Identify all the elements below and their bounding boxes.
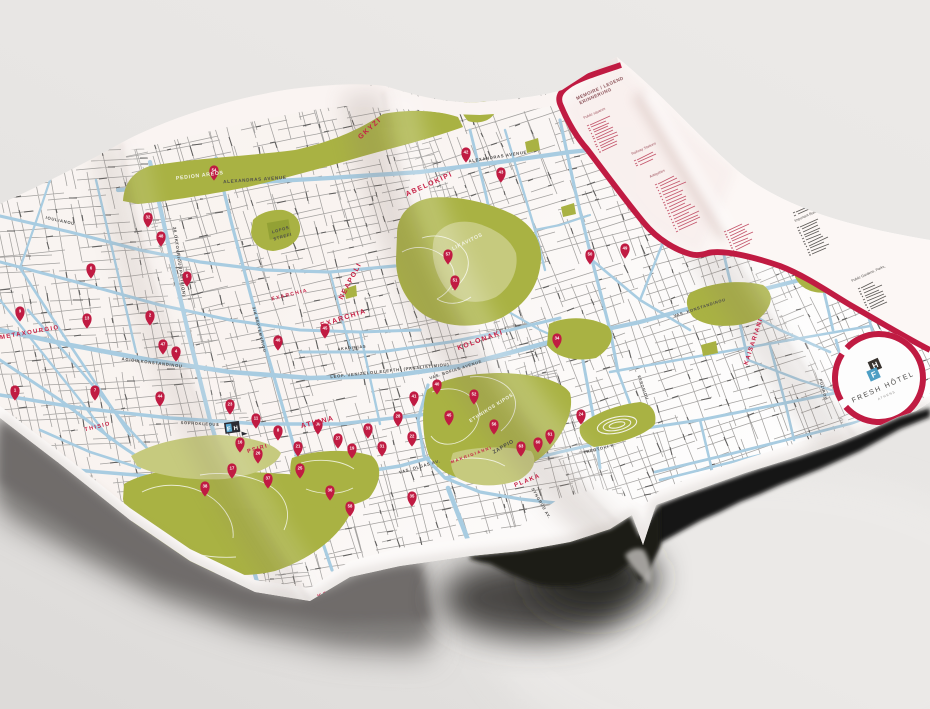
svg-text:37: 37 [266,476,271,481]
svg-text:16: 16 [238,440,243,445]
svg-text:21: 21 [296,444,301,449]
svg-text:34: 34 [555,336,560,341]
svg-text:52: 52 [472,392,477,397]
svg-text:32: 32 [146,215,151,220]
svg-text:38: 38 [203,484,208,489]
svg-text:46: 46 [276,338,281,343]
svg-text:63: 63 [519,444,524,449]
svg-text:49: 49 [623,246,628,251]
svg-text:41: 41 [412,394,417,399]
svg-text:40: 40 [435,382,440,387]
svg-text:56: 56 [492,422,497,427]
svg-text:48: 48 [159,234,164,239]
svg-text:11: 11 [254,416,259,421]
svg-text:58: 58 [348,504,353,509]
svg-text:24: 24 [579,412,584,417]
svg-text:57: 57 [446,252,451,257]
svg-text:H: H [233,426,238,433]
svg-text:23: 23 [228,402,233,407]
svg-text:44: 44 [158,394,163,399]
svg-text:31: 31 [380,444,385,449]
svg-text:45: 45 [447,413,452,418]
svg-text:42: 42 [464,150,469,155]
svg-text:36: 36 [328,488,333,493]
svg-text:19: 19 [350,446,355,451]
svg-text:61: 61 [548,432,553,437]
svg-text:27: 27 [336,436,341,441]
svg-text:47: 47 [161,342,166,347]
svg-text:17: 17 [230,466,235,471]
svg-text:35: 35 [410,494,415,499]
svg-text:51: 51 [453,278,458,283]
svg-text:60: 60 [536,440,541,445]
svg-text:43: 43 [499,170,504,175]
svg-text:50: 50 [588,252,593,257]
svg-text:13: 13 [85,316,90,321]
svg-text:22: 22 [410,434,415,439]
svg-text:28: 28 [396,414,401,419]
svg-text:33: 33 [366,426,371,431]
svg-text:25: 25 [298,466,303,471]
